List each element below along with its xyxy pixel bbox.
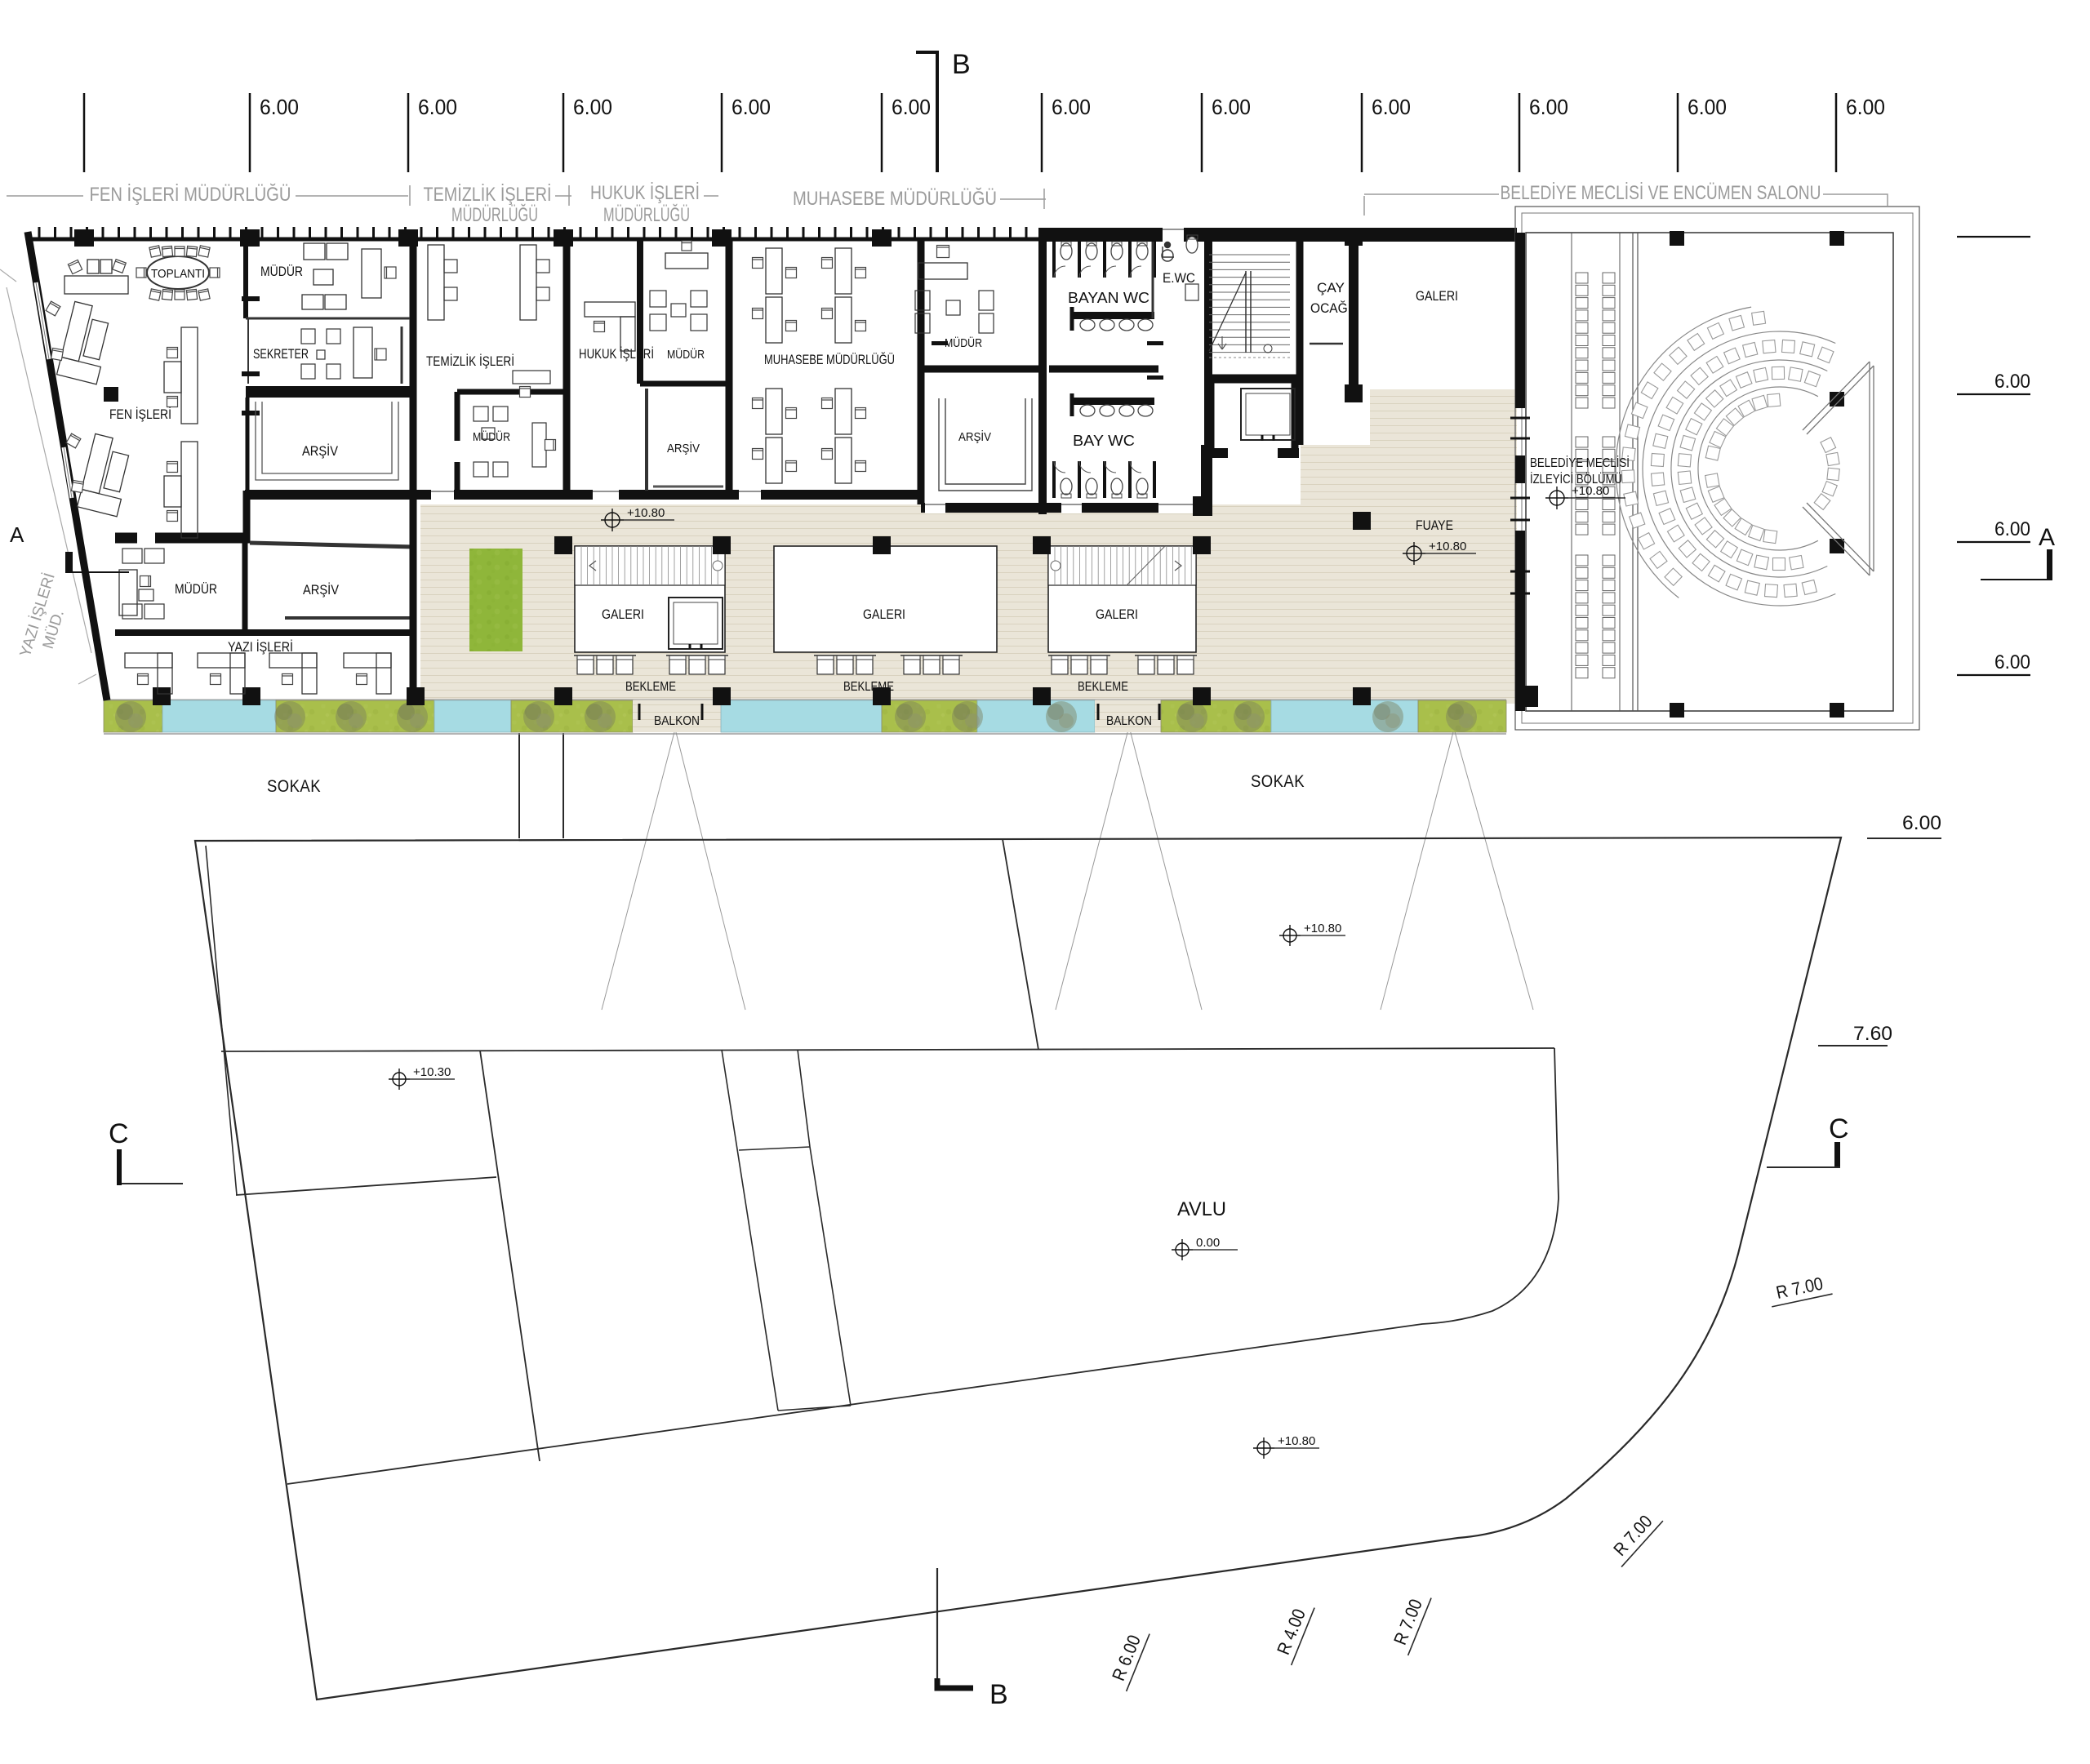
svg-text:6.00: 6.00 <box>573 95 612 119</box>
svg-text:YAZI İŞLERİ: YAZI İŞLERİ <box>228 639 293 655</box>
svg-text:+10.80: +10.80 <box>627 506 665 520</box>
svg-text:HUKUK İŞLERİ: HUKUK İŞLERİ <box>590 182 700 204</box>
svg-text:A: A <box>2039 524 2055 551</box>
svg-text:BAYAN WC: BAYAN WC <box>1068 290 1149 306</box>
svg-text:6.00: 6.00 <box>1994 371 2030 393</box>
svg-text:MUHASEBE MÜDÜRLÜĞÜ: MUHASEBE MÜDÜRLÜĞÜ <box>793 188 997 210</box>
svg-text:BEKLEME: BEKLEME <box>625 680 676 694</box>
svg-text:MÜDÜRLÜĞÜ: MÜDÜRLÜĞÜ <box>603 204 690 226</box>
svg-text:ARŞİV: ARŞİV <box>667 441 700 455</box>
svg-text:7.60: 7.60 <box>1853 1023 1892 1045</box>
svg-text:+10.80: +10.80 <box>1429 540 1466 553</box>
svg-text:+10.80: +10.80 <box>1278 1434 1315 1448</box>
svg-text:TEMİZLİK İŞLERİ: TEMİZLİK İŞLERİ <box>426 353 514 369</box>
svg-text:MÜDÜR: MÜDÜR <box>667 347 705 362</box>
svg-text:B: B <box>989 1679 1008 1710</box>
svg-text:+10.80: +10.80 <box>1304 922 1341 935</box>
svg-text:AVLU: AVLU <box>1177 1198 1226 1220</box>
svg-text:GALERI: GALERI <box>1416 288 1458 304</box>
svg-text:MÜDÜR: MÜDÜR <box>473 429 510 444</box>
svg-text:ARŞİV: ARŞİV <box>958 429 991 444</box>
svg-text:6.00: 6.00 <box>1372 95 1411 119</box>
svg-text:C: C <box>109 1118 129 1149</box>
svg-text:6.00: 6.00 <box>260 95 299 119</box>
svg-text:6.00: 6.00 <box>1902 812 1941 834</box>
svg-text:+10.30: +10.30 <box>413 1065 451 1079</box>
svg-text:MÜDÜR: MÜDÜR <box>175 581 217 597</box>
svg-text:BELEDİYE MECLİSİ: BELEDİYE MECLİSİ <box>1530 455 1630 470</box>
svg-text:FEN İŞLERİ MÜDÜRLÜĞÜ: FEN İŞLERİ MÜDÜRLÜĞÜ <box>90 184 291 206</box>
svg-text:TOPLANTI: TOPLANTI <box>151 267 205 281</box>
svg-text:MÜDÜR: MÜDÜR <box>945 335 982 350</box>
svg-text:MÜDÜR: MÜDÜR <box>260 264 303 279</box>
svg-text:SEKRETER: SEKRETER <box>253 346 309 362</box>
svg-text:FEN İŞLERİ: FEN İŞLERİ <box>109 407 171 422</box>
svg-text:C: C <box>1829 1113 1849 1144</box>
svg-text:TEMİZLİK İŞLERİ: TEMİZLİK İŞLERİ <box>424 184 552 206</box>
svg-text:ARŞİV: ARŞİV <box>302 443 339 459</box>
svg-text:6.00: 6.00 <box>1846 95 1885 119</box>
svg-text:BALKON: BALKON <box>1106 714 1152 728</box>
svg-text:BAY WC: BAY WC <box>1073 433 1135 449</box>
svg-text:MUHASEBE MÜDÜRLÜĞÜ: MUHASEBE MÜDÜRLÜĞÜ <box>764 352 895 367</box>
svg-text:BELEDİYE MECLİSİ VE ENCÜMEN SA: BELEDİYE MECLİSİ VE ENCÜMEN SALONU <box>1501 182 1821 204</box>
svg-text:ARŞİV: ARŞİV <box>303 582 340 598</box>
svg-text:B: B <box>952 49 971 80</box>
svg-text:E.WC: E.WC <box>1163 270 1195 286</box>
svg-text:SOKAK: SOKAK <box>1251 772 1305 791</box>
svg-text:FUAYE: FUAYE <box>1416 518 1453 533</box>
svg-text:6.00: 6.00 <box>892 95 931 119</box>
svg-text:SOKAK: SOKAK <box>267 777 321 796</box>
svg-text:MÜDÜRLÜĞÜ: MÜDÜRLÜĞÜ <box>451 204 538 226</box>
svg-text:6.00: 6.00 <box>1212 95 1251 119</box>
svg-text:OCAĞI: OCAĞI <box>1310 300 1351 316</box>
svg-text:A: A <box>10 522 24 547</box>
svg-text:6.00: 6.00 <box>1994 651 2030 673</box>
svg-text:6.00: 6.00 <box>1994 518 2030 540</box>
svg-text:6.00: 6.00 <box>1529 95 1568 119</box>
svg-text:ÇAY: ÇAY <box>1317 280 1345 295</box>
svg-text:GALERI: GALERI <box>1096 607 1138 622</box>
svg-text:6.00: 6.00 <box>1052 95 1091 119</box>
svg-text:+10.80: +10.80 <box>1572 484 1609 498</box>
svg-text:6.00: 6.00 <box>1688 95 1727 119</box>
svg-text:GALERI: GALERI <box>602 607 644 622</box>
svg-text:0.00: 0.00 <box>1196 1236 1220 1250</box>
svg-text:HUKUK İŞLERİ: HUKUK İŞLERİ <box>579 346 654 362</box>
svg-text:6.00: 6.00 <box>418 95 457 119</box>
svg-text:BEKLEME: BEKLEME <box>1078 680 1128 694</box>
svg-text:GALERI: GALERI <box>863 607 905 622</box>
svg-text:6.00: 6.00 <box>731 95 771 119</box>
svg-text:BALKON: BALKON <box>654 714 700 728</box>
